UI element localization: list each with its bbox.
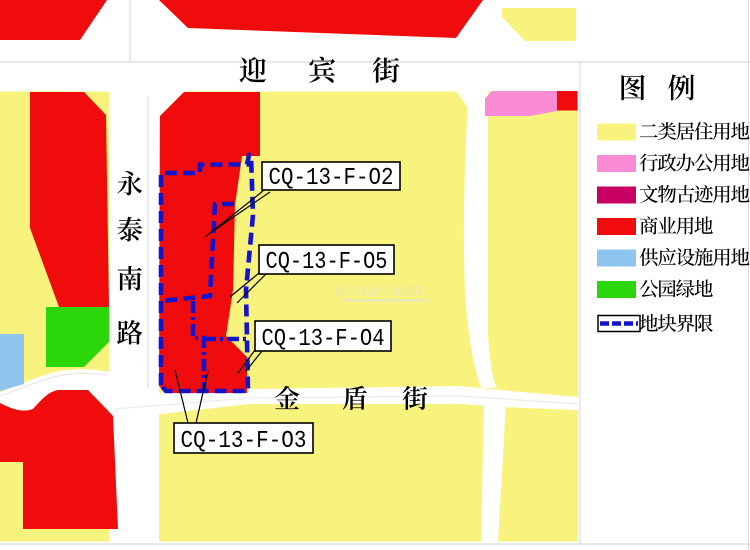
svg-text:CQ-13-F-O3: CQ-13-F-O3 xyxy=(181,428,307,455)
svg-text:CQ-13-F-O4: CQ-13-F-O4 xyxy=(262,326,385,353)
svg-text:CQ-13-F-O5: CQ-13-F-O5 xyxy=(266,249,388,276)
svg-text:CQ-13-F-O2: CQ-13-F-O2 xyxy=(269,165,394,192)
